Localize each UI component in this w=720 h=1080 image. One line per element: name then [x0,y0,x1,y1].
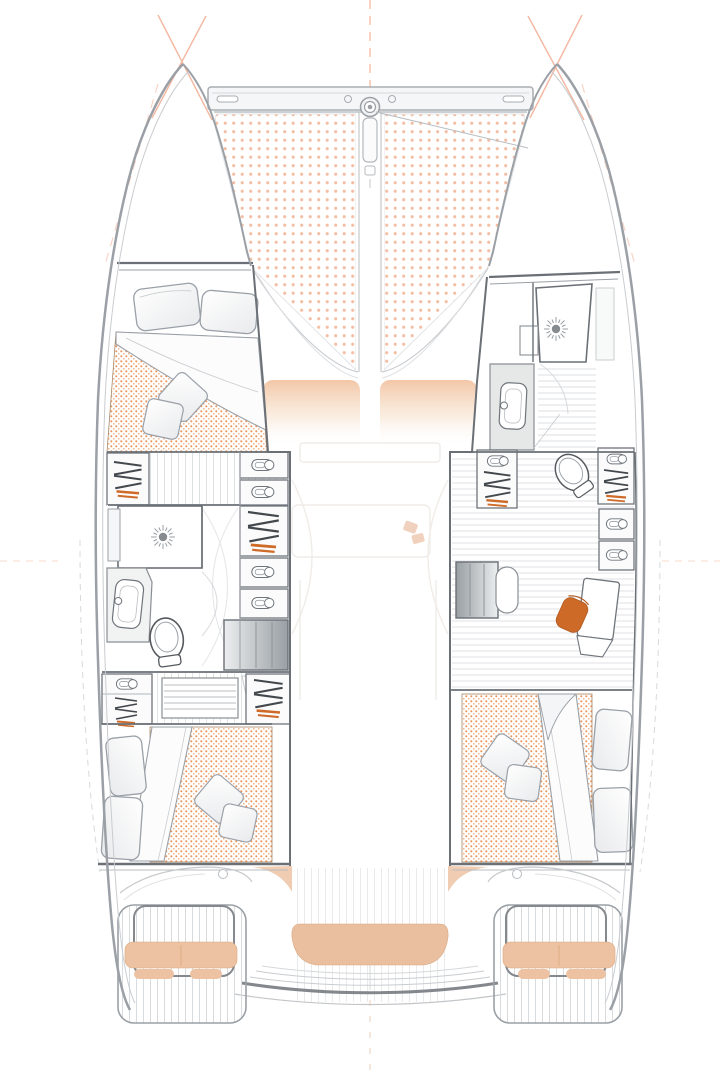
seat-pad [190,969,222,979]
cockpit-center-bench [292,924,448,965]
starboard-stern [488,867,622,1023]
beam-slot-starboard [503,96,524,102]
deck-plan-canvas [0,0,720,1080]
seat-pad [134,969,174,979]
foredeck-seat-starboard [380,380,477,447]
throw-pillow [142,398,185,441]
starboard-aft-cabin [451,692,633,862]
anchor-fitting [365,166,375,175]
bed-pillow [105,735,147,796]
galley-items-ghost [403,520,425,544]
foredeck-seat-port [263,380,360,447]
bed-pillow [133,282,202,331]
port-bow-rig-cross [152,15,212,120]
shower [536,284,592,362]
companionway-stairs [456,562,498,618]
seat-pad [566,969,606,979]
salon-ghost [292,443,448,700]
ladder-steps [162,678,238,718]
starboard-shroud-guide [582,84,636,268]
bed-pillow [199,290,258,335]
shower-head-icon [151,525,175,549]
anchor-channel [356,108,384,374]
companionway-steps [224,620,288,670]
bed-pillow [591,709,632,772]
shower-head-icon [544,317,568,341]
aft-cockpit [234,866,506,1080]
throw-pillow [218,803,258,843]
anchor-chute [363,118,377,162]
windlass-icon [361,98,380,117]
sink-icon [499,382,527,429]
shower-shelf [108,509,120,561]
port-shroud-guide [104,84,158,268]
port-aft-cabin [101,727,272,862]
seat-pad [518,969,550,979]
shower-shelf [520,326,538,355]
sink-icon [112,579,145,630]
deck-plan [0,0,720,1080]
throw-pillow [504,764,542,802]
beam-slot-port [217,96,238,102]
stairs-landing [496,567,518,613]
port-stern [118,867,252,1023]
starboard-bow-rig-cross [528,15,584,120]
port-bathroom [107,505,240,672]
